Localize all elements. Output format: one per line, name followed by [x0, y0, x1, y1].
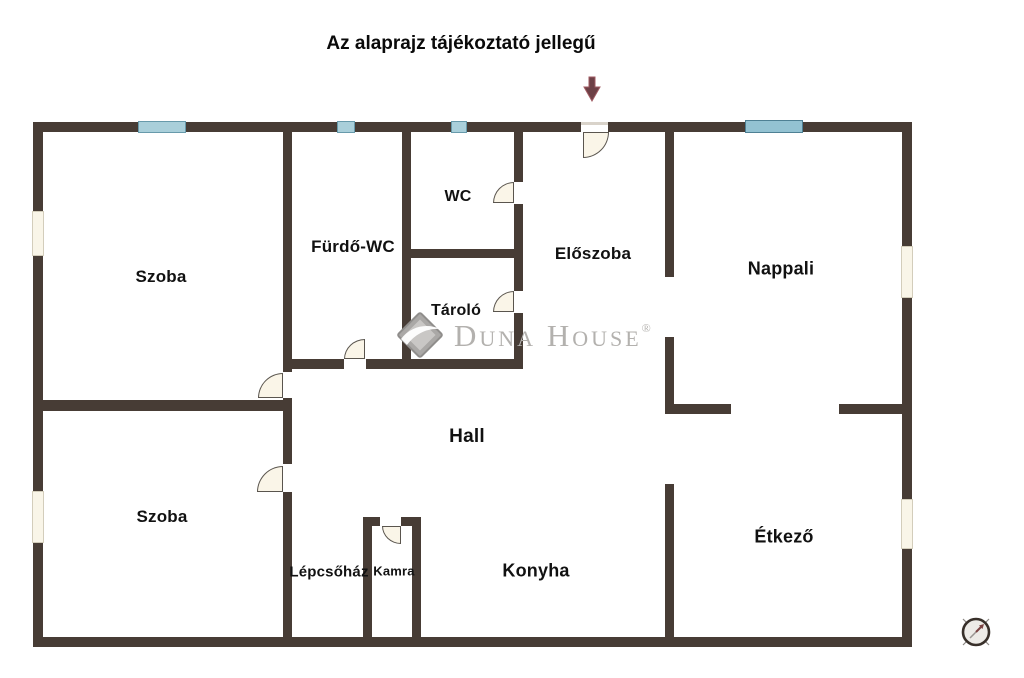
wall [33, 122, 581, 132]
wall [902, 122, 912, 647]
window-top-szoba1 [138, 121, 186, 133]
floorplan-canvas: Az alaprajz tájékoztató jellegű [0, 0, 1024, 678]
wall [402, 249, 523, 258]
room-label-eloszoba: Előszoba [555, 244, 631, 264]
door-kamra [382, 526, 401, 544]
wall [665, 122, 674, 277]
wall [366, 359, 523, 369]
window-left-szoba1 [32, 211, 44, 256]
wall [839, 404, 902, 414]
room-label-furdo-wc: Fürdő-WC [311, 237, 395, 257]
compass-icon [956, 612, 996, 652]
window-top-furdo [337, 121, 355, 133]
wall [33, 400, 292, 411]
entrance-arrow-icon [583, 76, 601, 102]
wall [514, 122, 523, 182]
wall [665, 484, 674, 647]
room-label-kamra: Kamra [373, 564, 414, 579]
room-label-konyha: Konyha [502, 561, 569, 582]
door-wc [493, 182, 514, 203]
room-label-nappali: Nappali [748, 259, 814, 280]
room-label-tarolo: Tároló [431, 302, 481, 320]
wall [665, 404, 731, 414]
window-left-szoba2 [32, 491, 44, 543]
door-entrance [583, 132, 609, 158]
wall [283, 122, 292, 372]
window-top-nappali [745, 120, 803, 133]
wall [514, 313, 523, 369]
wall [33, 637, 912, 647]
window-right-etkezo [901, 499, 913, 549]
room-label-szoba-2: Szoba [136, 507, 187, 527]
wall [33, 122, 43, 647]
door-szoba1 [258, 373, 283, 398]
wall [402, 122, 411, 369]
disclaimer-title: Az alaprajz tájékoztató jellegű [326, 33, 595, 55]
room-label-wc: WC [444, 188, 471, 206]
door-szoba2 [257, 466, 283, 492]
wall [514, 204, 523, 291]
entrance-door-frame [581, 122, 608, 125]
room-label-etkezo: Étkező [754, 527, 813, 548]
room-label-hall: Hall [449, 426, 485, 448]
room-label-szoba-1: Szoba [135, 267, 186, 287]
window-top-wc [451, 121, 467, 133]
room-label-lepcsohaz: Lépcsőház [289, 564, 368, 581]
door-tarolo [493, 291, 514, 312]
dunahouse-brand-text: Duna House® [454, 320, 651, 351]
wall [665, 337, 674, 414]
window-right-nappali [901, 246, 913, 298]
door-furdo [344, 339, 365, 359]
wall [283, 359, 344, 369]
